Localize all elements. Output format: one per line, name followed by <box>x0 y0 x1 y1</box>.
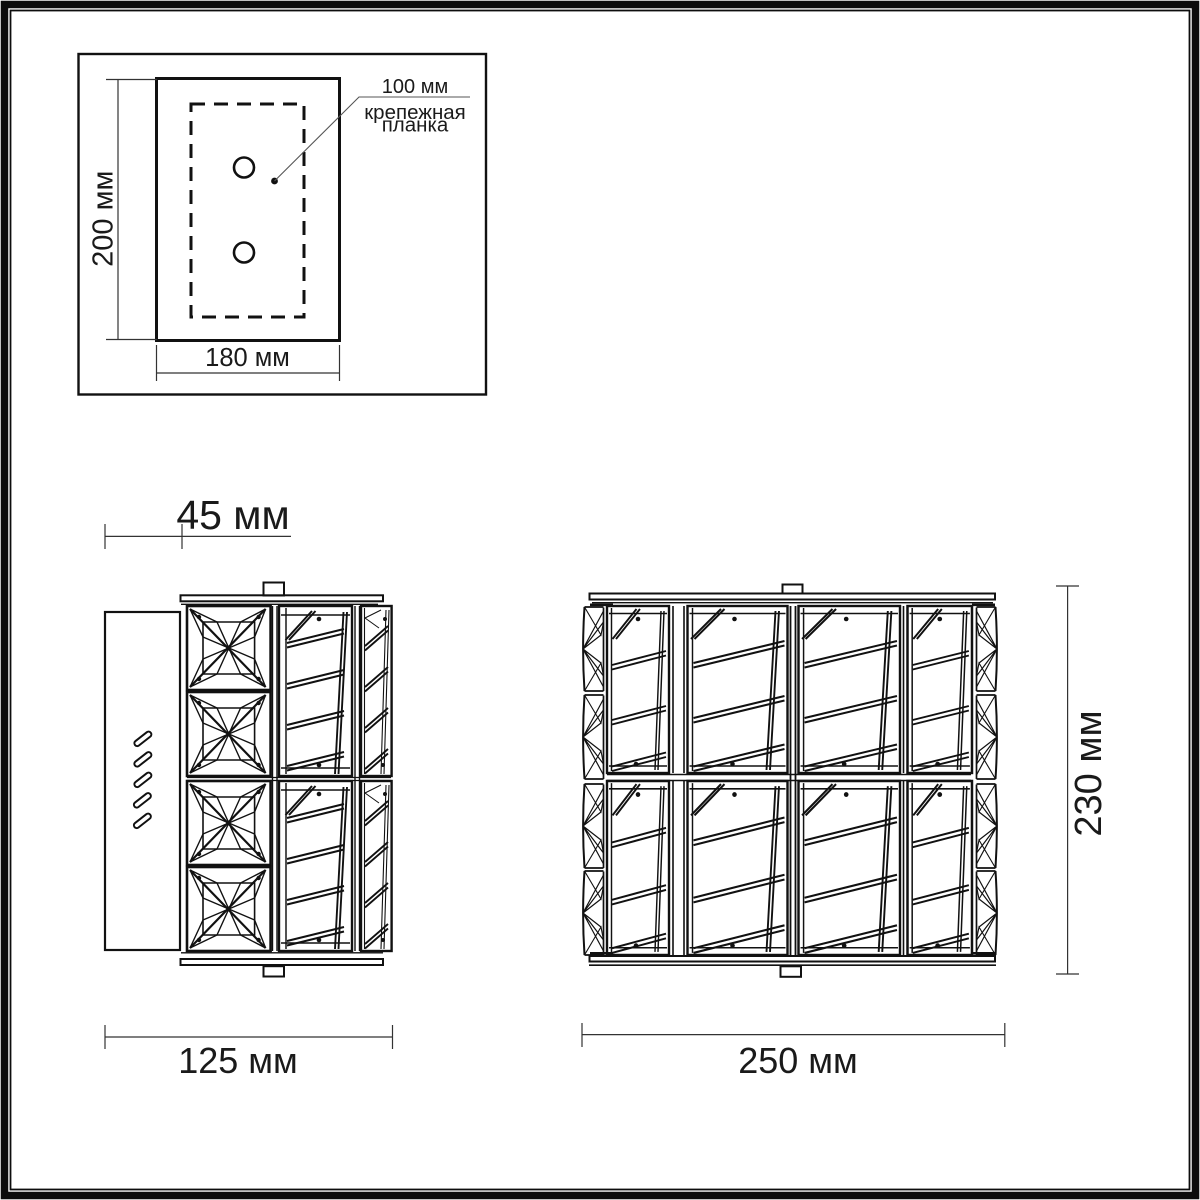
svg-text:250 мм: 250 мм <box>738 1040 858 1081</box>
svg-text:планка: планка <box>382 114 449 137</box>
svg-text:200 мм: 200 мм <box>88 171 120 267</box>
svg-text:180 мм: 180 мм <box>205 344 290 372</box>
svg-text:230 мм: 230 мм <box>1068 710 1110 836</box>
svg-text:125 мм: 125 мм <box>178 1040 298 1081</box>
svg-text:45 мм: 45 мм <box>176 492 289 538</box>
svg-text:100 мм: 100 мм <box>382 76 448 98</box>
